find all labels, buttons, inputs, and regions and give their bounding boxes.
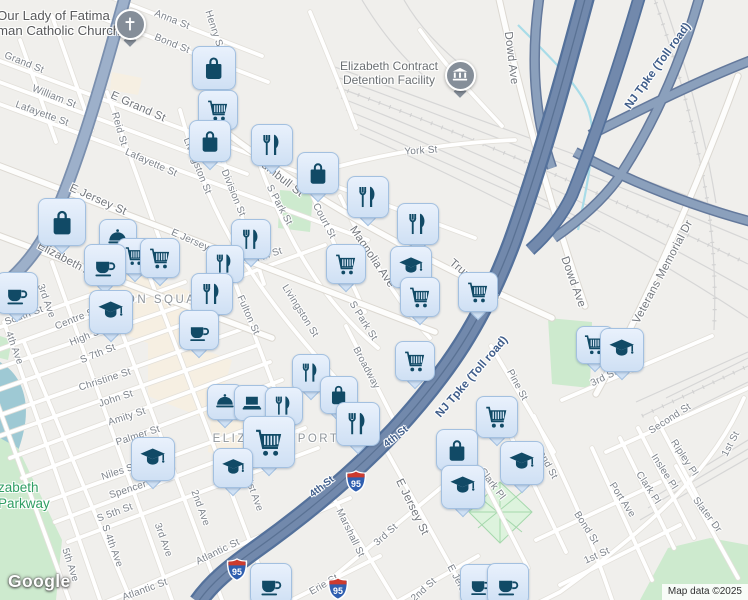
- bag-icon: [46, 206, 78, 238]
- school-icon: [507, 448, 536, 477]
- school-icon: [96, 297, 125, 326]
- poi-marker-bag[interactable]: [189, 120, 231, 162]
- coffee-icon: [3, 279, 31, 307]
- restaurant-icon: [354, 183, 382, 211]
- school-icon: [138, 444, 167, 473]
- bag-icon: [304, 159, 332, 187]
- poi-marker-restaurant[interactable]: [397, 203, 439, 245]
- coffee-icon: [91, 251, 119, 279]
- restaurant-icon: [198, 280, 226, 308]
- bag-icon: [443, 436, 471, 464]
- bag-icon: [199, 53, 228, 82]
- poi-marker-cart[interactable]: [400, 277, 440, 317]
- poi-marker-coffee[interactable]: [84, 244, 126, 286]
- restaurant-icon: [258, 131, 286, 159]
- poi-marker-coffee[interactable]: [487, 563, 529, 600]
- school-icon: [607, 335, 636, 364]
- map-canvas[interactable]: Anna StBond StHenry StGrand StWilliam St…: [0, 0, 748, 600]
- coffee-icon: [257, 570, 285, 598]
- poi-marker-school[interactable]: [213, 448, 253, 488]
- bag-icon: [196, 127, 224, 155]
- restaurant-icon: [271, 393, 296, 418]
- poi-marker-coffee[interactable]: [250, 563, 292, 600]
- restaurant-icon: [404, 210, 432, 238]
- poi-marker-school[interactable]: [600, 328, 644, 372]
- laptop-icon: [240, 391, 264, 415]
- poi-marker-school[interactable]: [441, 465, 485, 509]
- government-icon: [450, 65, 470, 85]
- poi-marker-school[interactable]: [131, 437, 175, 481]
- poi-marker-cart[interactable]: [395, 341, 435, 381]
- restaurant-icon: [343, 409, 372, 438]
- cart-icon: [483, 403, 511, 431]
- poi-marker-restaurant[interactable]: [191, 273, 233, 315]
- poi-marker-school[interactable]: [500, 441, 544, 485]
- poi-marker-coffee[interactable]: [179, 310, 219, 350]
- cart-icon: [147, 245, 174, 272]
- coffee-icon: [494, 570, 522, 598]
- poi-marker-bag[interactable]: [297, 152, 339, 194]
- cart-icon: [465, 279, 492, 306]
- poi-marker-bag[interactable]: [38, 198, 86, 246]
- coffee-icon: [186, 317, 213, 344]
- cart-icon: [402, 348, 429, 375]
- google-logo[interactable]: Google: [8, 571, 71, 592]
- poi-marker-restaurant[interactable]: [251, 124, 293, 166]
- cart-icon: [407, 284, 434, 311]
- poi-marker-church[interactable]: [115, 9, 146, 40]
- school-icon: [448, 472, 477, 501]
- poi-marker-government[interactable]: [445, 60, 476, 91]
- school-icon: [220, 455, 247, 482]
- church-icon: [120, 14, 140, 34]
- poi-marker-school[interactable]: [89, 290, 133, 334]
- cart-icon: [252, 425, 287, 460]
- poi-marker-cart[interactable]: [140, 238, 180, 278]
- poi-marker-restaurant[interactable]: [347, 176, 389, 218]
- poi-marker-cart[interactable]: [476, 396, 518, 438]
- poi-marker-cart[interactable]: [458, 272, 498, 312]
- poi-marker-cart[interactable]: [326, 244, 366, 284]
- cart-icon: [333, 251, 360, 278]
- poi-marker-restaurant[interactable]: [336, 402, 380, 446]
- poi-marker-bag[interactable]: [192, 46, 236, 90]
- map-attribution: Map data ©2025: [662, 584, 748, 600]
- poi-marker-coffee[interactable]: [0, 272, 38, 314]
